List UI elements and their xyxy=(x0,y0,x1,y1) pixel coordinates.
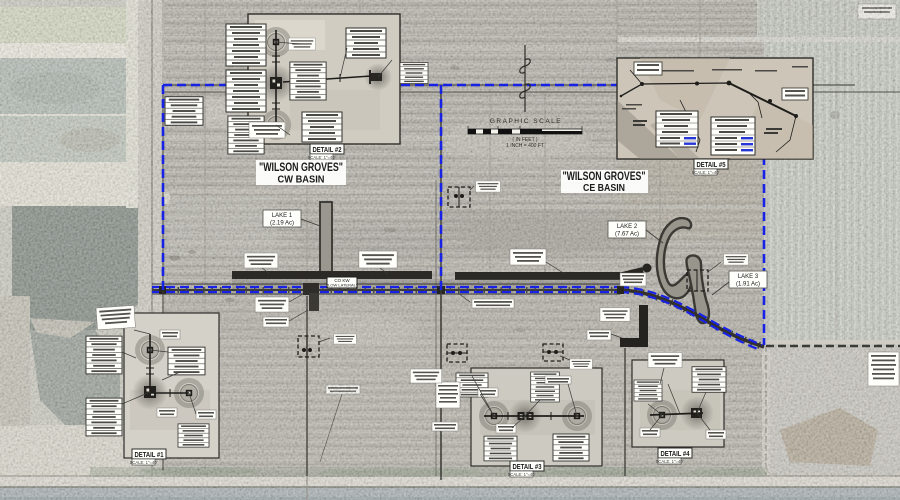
svg-text:LAKE 1: LAKE 1 xyxy=(272,213,293,219)
svg-text:CW BASIN: CW BASIN xyxy=(278,174,325,186)
svg-text:(7.67 Ac): (7.67 Ac) xyxy=(615,232,639,238)
svg-text:SCALE: 1"=40': SCALE: 1"=40' xyxy=(130,460,158,465)
svg-text:DETAIL #3: DETAIL #3 xyxy=(513,464,542,471)
svg-text:DETAIL #4: DETAIL #4 xyxy=(661,451,690,458)
svg-text:(LOW LATERAL): (LOW LATERAL) xyxy=(327,283,358,288)
svg-text:SCALE: 1"=40': SCALE: 1"=40' xyxy=(308,155,336,160)
svg-text:CE BASIN: CE BASIN xyxy=(583,182,625,194)
svg-text:DETAIL #2: DETAIL #2 xyxy=(313,147,342,154)
svg-text:GRAPHIC SCALE: GRAPHIC SCALE xyxy=(490,118,562,125)
svg-text:SCALE: 1"=40': SCALE: 1"=40' xyxy=(508,472,536,477)
svg-text:1 INCH = 400 FT: 1 INCH = 400 FT xyxy=(506,143,544,149)
svg-text:DETAIL #1: DETAIL #1 xyxy=(135,452,164,459)
svg-text:"WILSON GROVES": "WILSON GROVES" xyxy=(259,162,343,174)
svg-text:SCALE: 1"=40': SCALE: 1"=40' xyxy=(656,459,684,464)
svg-text:DETAIL #5: DETAIL #5 xyxy=(697,162,726,169)
svg-text:(2.19 Ac): (2.19 Ac) xyxy=(270,221,294,227)
svg-text:LAKE 2: LAKE 2 xyxy=(617,224,638,230)
svg-text:(1.91 Ac): (1.91 Ac) xyxy=(736,282,760,288)
svg-text:SCALE: 1"=40': SCALE: 1"=40' xyxy=(692,170,720,175)
svg-text:LAKE 3: LAKE 3 xyxy=(738,274,759,280)
